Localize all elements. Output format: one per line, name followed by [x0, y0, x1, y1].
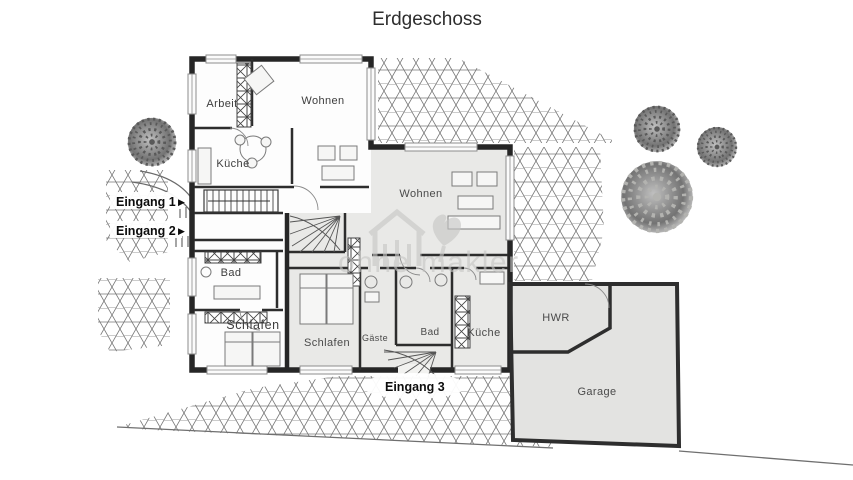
tree-icon	[633, 105, 681, 153]
entrance-1-arrow-icon: ▶	[178, 197, 185, 207]
room-label-arbeit: Arbeit	[206, 98, 237, 110]
page-title: Erdgeschoss	[372, 9, 482, 30]
entrance-2-label: Eingang 2	[116, 224, 176, 238]
room-label-wohnen-right: Wohnen	[399, 188, 442, 200]
entrance-3-label: Eingang 3	[385, 380, 445, 394]
room-label-wohnen-left: Wohnen	[301, 95, 344, 107]
entrance-1-label: Eingang 1	[116, 195, 176, 209]
room-label-bad-left: Bad	[221, 267, 242, 279]
tree-icon	[127, 117, 177, 167]
room-label-schlafen-right: Schlafen	[304, 337, 350, 349]
room-label-gaeste: Gäste	[362, 333, 388, 343]
entrance-2-arrow-icon: ▶	[178, 226, 185, 236]
room-label-hwr: HWR	[542, 312, 569, 324]
floorplan-drawing: Erdgeschoss Arbeit Wohnen Küche Bad Schl…	[0, 0, 853, 480]
room-label-bad-right: Bad	[421, 327, 440, 338]
room-label-garage: Garage	[577, 386, 616, 398]
room-label-kueche-right: Küche	[467, 327, 500, 339]
garage-area	[510, 284, 679, 446]
room-label-kueche-left: Küche	[216, 158, 249, 170]
property-boundary-line-right	[679, 451, 853, 465]
tree-icon	[696, 126, 738, 168]
floorplan-page: Erdgeschoss Arbeit Wohnen Küche Bad Schl…	[0, 0, 853, 480]
tree-icon	[620, 160, 694, 234]
room-label-schlafen-left: Schlafen	[226, 318, 279, 332]
watermark-text: ohne makler	[338, 246, 520, 279]
